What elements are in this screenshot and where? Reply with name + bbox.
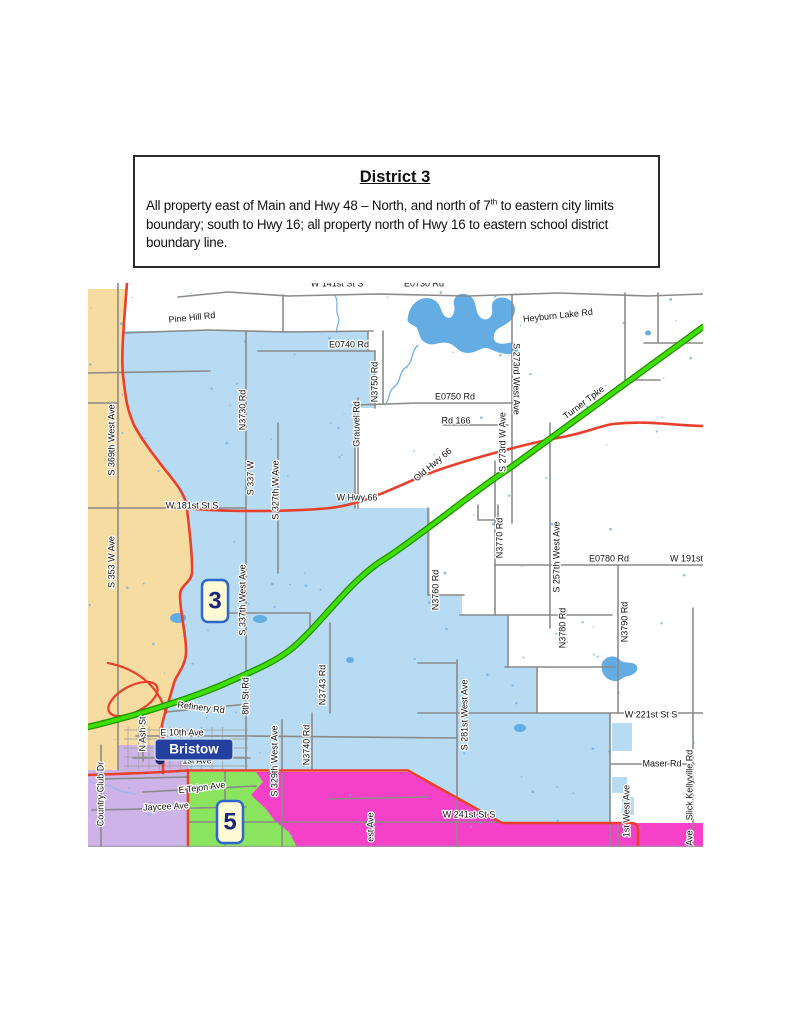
speckle-dot xyxy=(143,583,145,585)
speckle-dot xyxy=(439,291,442,294)
speckle-dot xyxy=(225,442,228,445)
road-label: W 221st St S xyxy=(625,709,678,719)
speckle-dot xyxy=(350,794,351,795)
speckle-dot xyxy=(387,297,388,298)
speckle-dot xyxy=(164,672,165,673)
road-label: Slick Kellyville Rd xyxy=(684,750,694,821)
district-header-box: District 3 All property east of Main and… xyxy=(133,155,660,268)
speckle-dot xyxy=(445,628,448,631)
pond xyxy=(253,615,267,623)
speckle-dot xyxy=(233,541,235,543)
speckle-dot xyxy=(229,674,231,676)
road-label: S 273rd West Ave xyxy=(512,343,522,415)
speckle-dot xyxy=(120,322,123,325)
district-map: Pine Hill RdW 141st St SE0730 RdE0740 Rd… xyxy=(88,283,703,847)
speckle-dot xyxy=(273,606,275,608)
speckle-dot xyxy=(520,325,522,327)
road-label: N3780 Rd xyxy=(557,608,567,649)
district-5-number: 5 xyxy=(223,808,236,835)
speckle-dot xyxy=(270,438,272,440)
road-label: 1st West Ave xyxy=(621,785,631,837)
speckle-dot xyxy=(142,433,143,434)
speckle-dot xyxy=(508,355,510,357)
creek xyxy=(335,295,339,333)
small-lake xyxy=(602,657,638,682)
speckle-dot xyxy=(556,819,559,822)
road-label: Rd 166 xyxy=(441,415,470,425)
speckle-dot xyxy=(115,739,116,740)
speckle-dot xyxy=(656,430,658,432)
speckle-dot xyxy=(486,673,489,676)
pond xyxy=(514,724,526,732)
speckle-dot xyxy=(593,654,595,656)
road-label: N3770 Rd xyxy=(494,518,504,559)
speckle-dot xyxy=(413,658,415,660)
heyburn-lake xyxy=(407,294,519,354)
road-label: S 369th West Ave xyxy=(106,404,116,475)
speckle-dot xyxy=(248,603,250,605)
road-label: Grauvel Rd xyxy=(351,401,361,447)
speckle-dot xyxy=(192,663,194,665)
road-label: N3790 Rd xyxy=(619,602,629,643)
speckle-dot xyxy=(545,477,547,479)
road-label: N Ash St xyxy=(137,716,147,752)
speckle-dot xyxy=(470,826,472,828)
district-3-badge: 3 xyxy=(202,580,228,622)
speckle-dot xyxy=(343,413,344,414)
speckle-dot xyxy=(287,475,289,477)
speckle-dot xyxy=(289,584,291,586)
speckle-dot xyxy=(235,712,237,714)
road-label: W Hwy 66 xyxy=(336,492,377,502)
creek xyxy=(386,345,418,403)
speckle-dot xyxy=(521,776,523,778)
speckle-dot xyxy=(304,572,306,574)
road-label: Old Hwy 66 xyxy=(412,446,454,484)
speckle-dot xyxy=(663,377,664,378)
speckle-dot xyxy=(210,388,212,390)
speckle-dot xyxy=(572,793,574,795)
speckle-dot xyxy=(556,786,558,788)
speckle-dot xyxy=(147,814,149,816)
road-label: E0740 Rd xyxy=(329,339,369,349)
speckle-dot xyxy=(122,394,124,396)
pond xyxy=(346,657,354,663)
speckle-dot xyxy=(126,587,129,590)
speckle-dot xyxy=(452,352,453,353)
speckle-dot xyxy=(511,684,513,686)
road-label: W 141st St S xyxy=(311,283,364,288)
speckle-dot xyxy=(591,747,594,750)
speckle-dot xyxy=(229,405,230,406)
speckle-dot xyxy=(129,787,131,789)
road-label: E0780 Rd xyxy=(589,553,629,563)
speckle-dot xyxy=(463,752,465,754)
speckle-dot xyxy=(121,432,123,434)
road-label: N3750 Rd xyxy=(369,362,379,403)
speckle-dot xyxy=(676,320,677,321)
road-label: E0750 Rd xyxy=(435,391,475,401)
district-description: All property east of Main and Hwy 48 – N… xyxy=(146,197,644,253)
road-label: S 329th West Ave xyxy=(269,725,279,796)
speckle-dot xyxy=(131,297,132,298)
road-label: Heyburn Lake Rd xyxy=(523,307,594,324)
speckle-dot xyxy=(480,823,481,824)
speckle-dot xyxy=(305,584,308,587)
speckle-dot xyxy=(473,514,474,515)
district-5-badge: 5 xyxy=(217,801,243,843)
speckle-dot xyxy=(330,423,331,424)
speckle-dot xyxy=(271,582,274,585)
speckle-dot xyxy=(190,292,192,294)
road-label: est Ave xyxy=(365,812,375,841)
road-label: Country Club Dr xyxy=(95,762,105,827)
speckle-dot xyxy=(531,790,534,793)
speckle-dot xyxy=(90,307,91,308)
road-label: E0730 Rd xyxy=(404,283,444,288)
speckle-dot xyxy=(413,450,415,452)
speckle-dot xyxy=(152,643,155,646)
speckle-dot xyxy=(157,470,159,472)
speckle-dot xyxy=(597,656,599,658)
speckle-dot xyxy=(260,752,261,753)
town-label-text: Bristow xyxy=(169,742,219,757)
road-label: N3743 Rd xyxy=(317,665,327,706)
speckle-dot xyxy=(290,835,292,837)
speckle-dot xyxy=(89,363,92,366)
road-label: Maser Rd xyxy=(642,758,681,768)
speckle-dot xyxy=(605,385,607,387)
speckle-dot xyxy=(294,353,296,355)
speckle-dot xyxy=(523,657,525,659)
speckle-dot xyxy=(207,629,209,631)
speckle-dot xyxy=(89,604,91,606)
road-label: W 181st St S xyxy=(166,500,219,510)
road-label: S 273rd W Ave xyxy=(497,412,507,472)
speckle-dot xyxy=(206,717,208,719)
road-label: S 327th W Ave xyxy=(270,460,280,519)
speckle-dot xyxy=(338,456,340,458)
speckle-dot xyxy=(341,454,342,455)
road-label: Ave xyxy=(684,830,694,845)
road-label: S 337 W xyxy=(245,460,255,495)
speckle-dot xyxy=(660,622,662,624)
speckle-dot xyxy=(592,627,593,628)
road-label: N3760 Rd xyxy=(430,570,440,611)
speckle-dot xyxy=(236,383,238,385)
speckle-dot xyxy=(145,437,147,439)
road-label: N3740 Rd xyxy=(301,725,311,766)
speckle-dot xyxy=(689,357,692,360)
speckle-dot xyxy=(480,416,483,419)
road-label: S 337th West Ave xyxy=(237,564,247,635)
speckle-dot xyxy=(515,702,517,704)
blue-pocket xyxy=(612,723,632,751)
speckle-dot xyxy=(182,635,183,636)
pond xyxy=(645,331,651,336)
speckle-dot xyxy=(683,574,686,577)
road-label: Pine Hill Rd xyxy=(168,310,216,325)
district-title: District 3 xyxy=(146,168,644,187)
road-label: W 241st St S xyxy=(443,809,496,819)
speckle-dot xyxy=(407,367,408,368)
speckle-dot xyxy=(444,572,447,575)
speckle-dot xyxy=(662,417,664,419)
speckle-dot xyxy=(529,373,531,375)
speckle-dot xyxy=(581,621,583,623)
road-label: S 353 W Ave xyxy=(106,536,116,588)
speckle-dot xyxy=(521,566,522,567)
district-title-text: District 3 xyxy=(360,168,431,186)
road-label: 8th St Rd xyxy=(240,677,250,715)
road-label: S 257th West Ave xyxy=(551,521,561,592)
district-3-number: 3 xyxy=(208,587,221,614)
speckle-dot xyxy=(319,589,321,591)
road-label: E 10th Ave xyxy=(160,727,203,737)
road-label: S 281st West Ave xyxy=(459,680,469,751)
road-label: W 191st St xyxy=(670,553,703,563)
road-label: N3730 Rd xyxy=(237,390,247,431)
speckle-dot xyxy=(606,444,607,445)
speckle-dot xyxy=(508,495,510,497)
speckle-dot xyxy=(499,354,502,357)
speckle-dot xyxy=(337,427,340,430)
speckle-dot xyxy=(669,298,672,301)
speckle-dot xyxy=(609,528,612,531)
